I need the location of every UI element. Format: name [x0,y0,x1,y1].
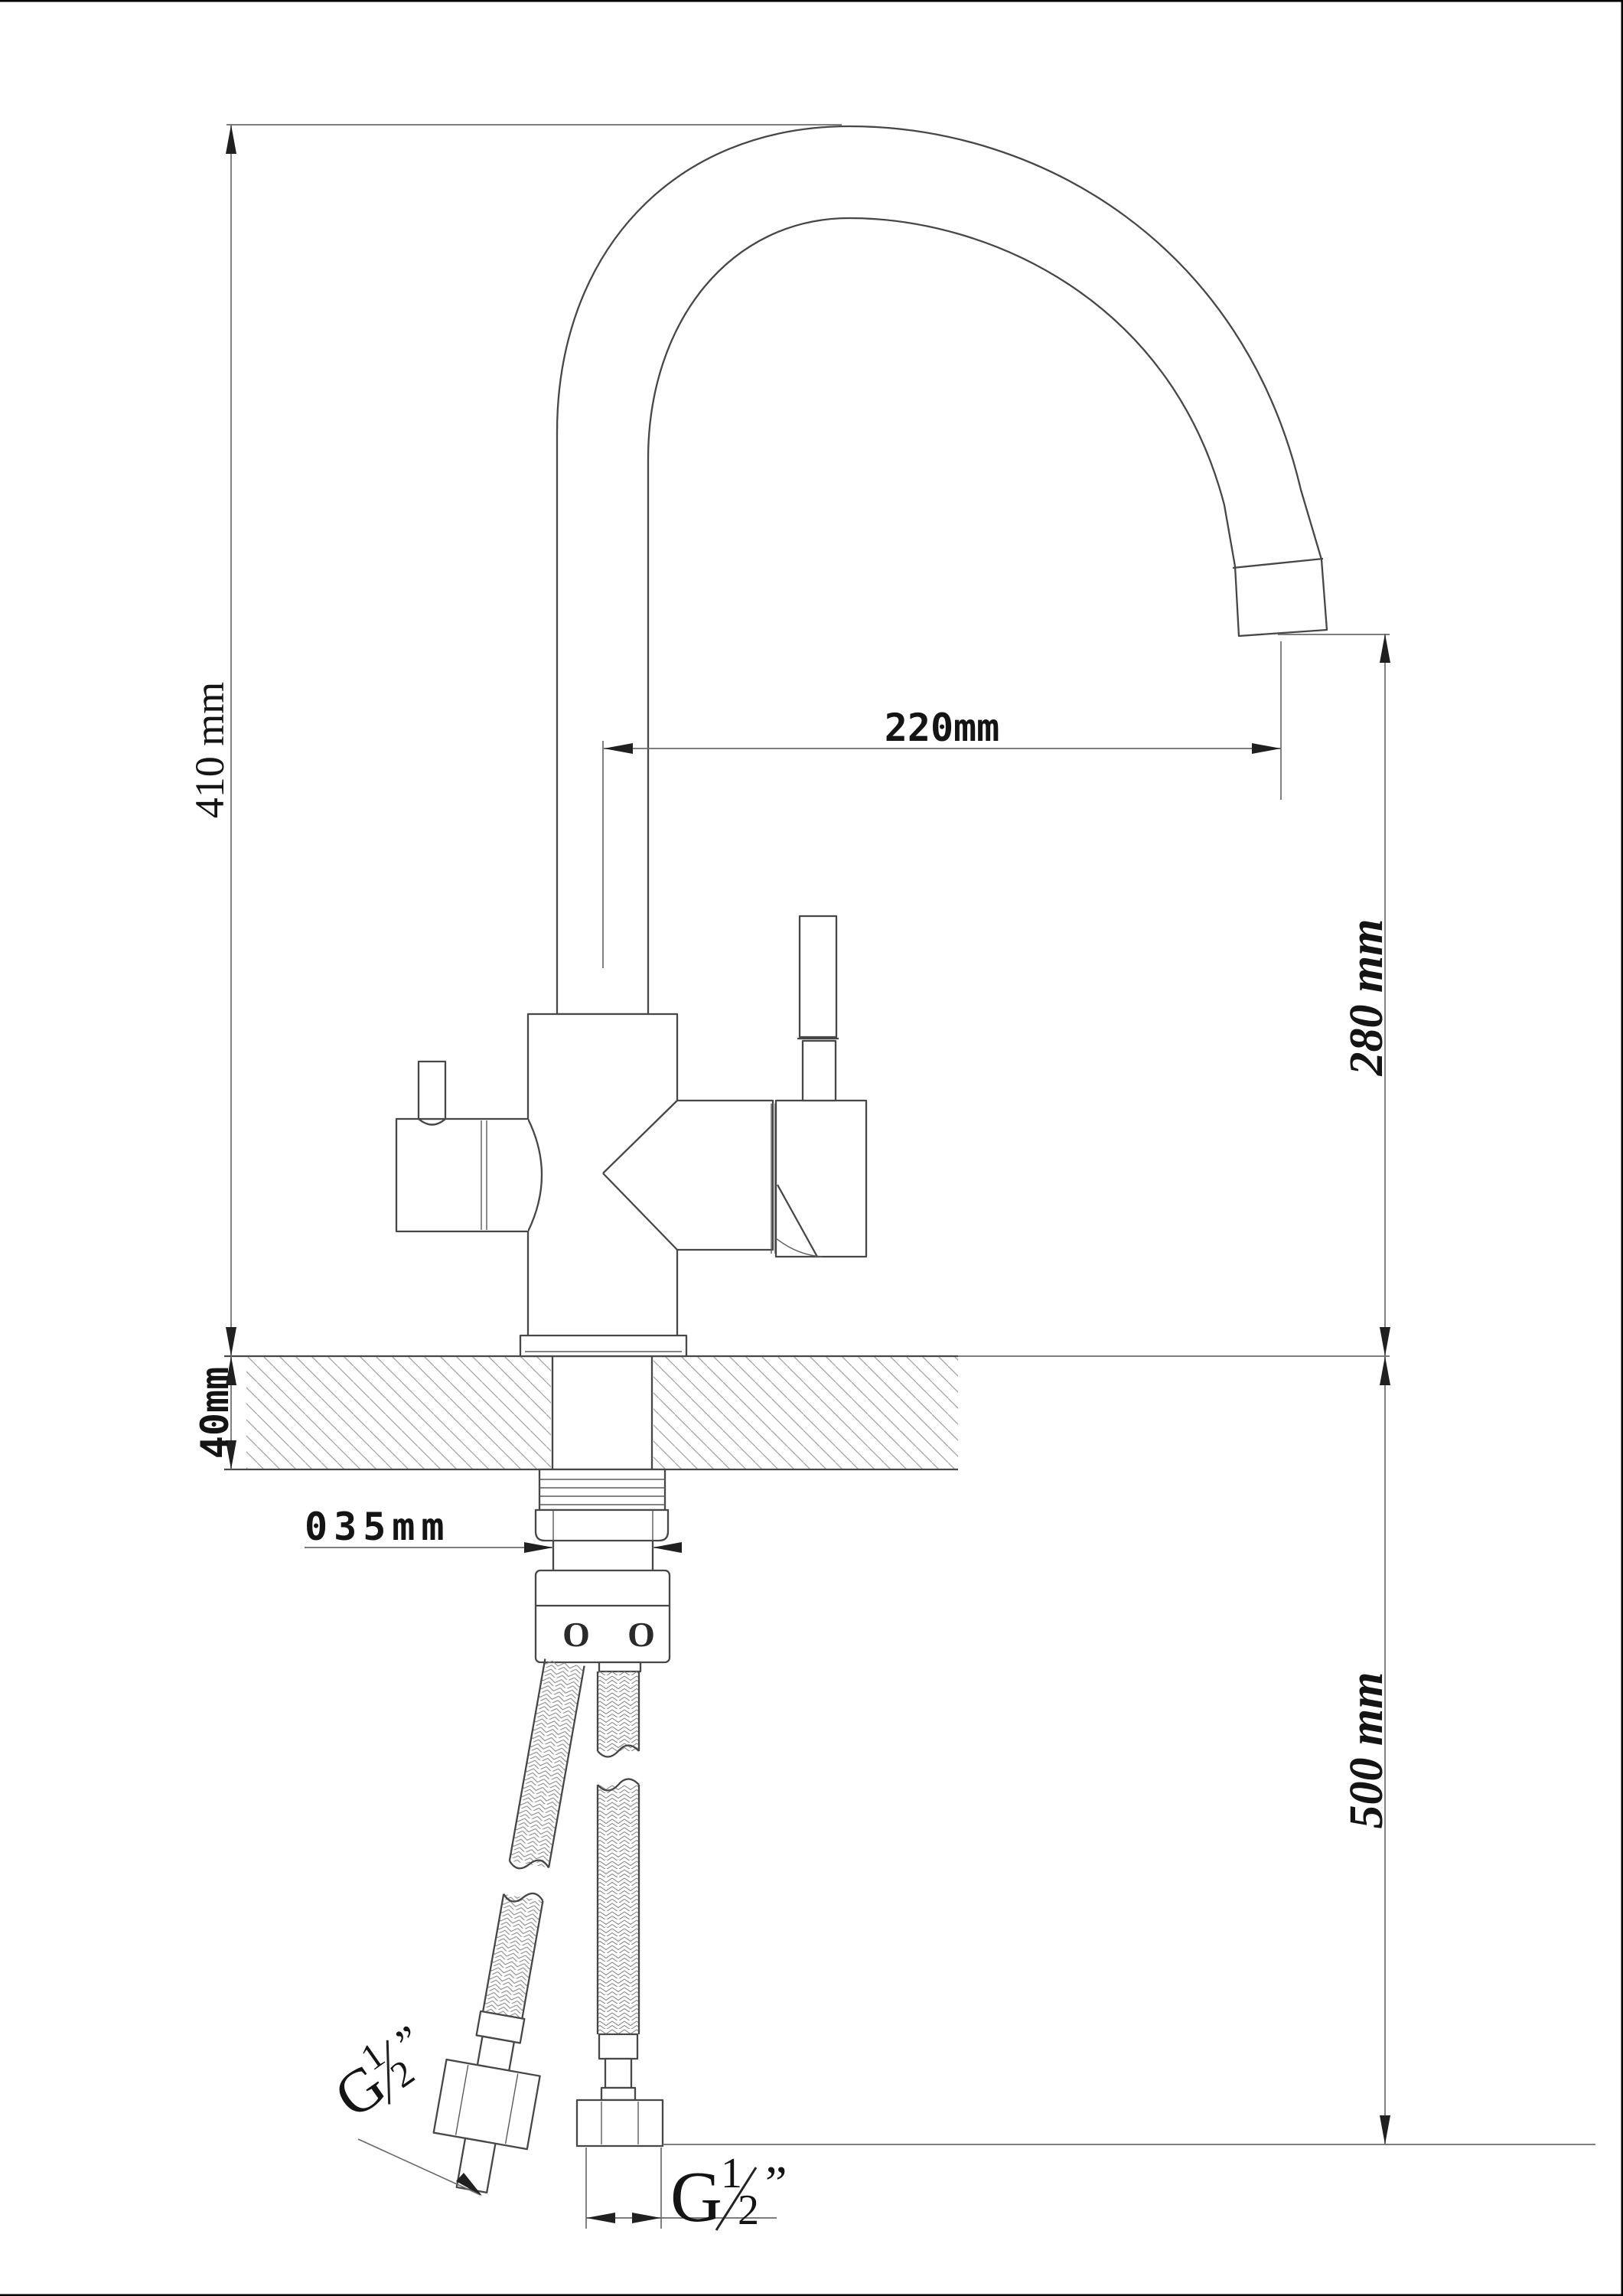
fitting-right-nut [577,2100,663,2146]
faucet-dimension-diagram: O O [0,0,1623,2296]
fitting-left-nut [434,2060,540,2149]
label-hose-length: 500 mm [1341,1672,1393,1829]
drawing-page: O O [0,0,1623,2296]
right-handle-block [776,1101,866,1257]
countertop-hatch-left [246,1357,551,1469]
hose-stub [599,1662,640,1671]
thread-right-letter: G [670,2157,722,2237]
fitting-right-neck [605,2059,631,2088]
fitting-right-collar [599,2034,637,2059]
left-handle-block [396,1119,528,1231]
label-spout-reach: 220mm [885,706,1000,750]
countertop-hatch-right [653,1357,958,1469]
label-total-height: 410 mm [187,682,233,819]
right-lever-lower [803,1041,836,1101]
label-outlet-height: 280 mm [1341,919,1393,1077]
adapter-port-right-mark: O [627,1615,655,1654]
adapter-port-left-mark: O [562,1615,590,1654]
hose-right-braid-lower [598,1785,639,2034]
hose-right-braid-upper [598,1671,639,1751]
thread-right-unit: ” [765,2156,787,2210]
label-hole-diameter: 035mm [305,1505,451,1549]
fitting-right-ring [601,2088,635,2100]
frame-top [0,0,1623,2]
threaded-shank [539,1469,665,1510]
thread-right-denominator: 2 [738,2187,759,2234]
label-counter-thickness: 40mm [193,1367,237,1459]
mounting-nut [536,1510,668,1541]
under-counter-assembly: O O [536,1469,670,1671]
right-lever-upper [800,916,836,1037]
left-handle-lever [419,1062,445,1119]
